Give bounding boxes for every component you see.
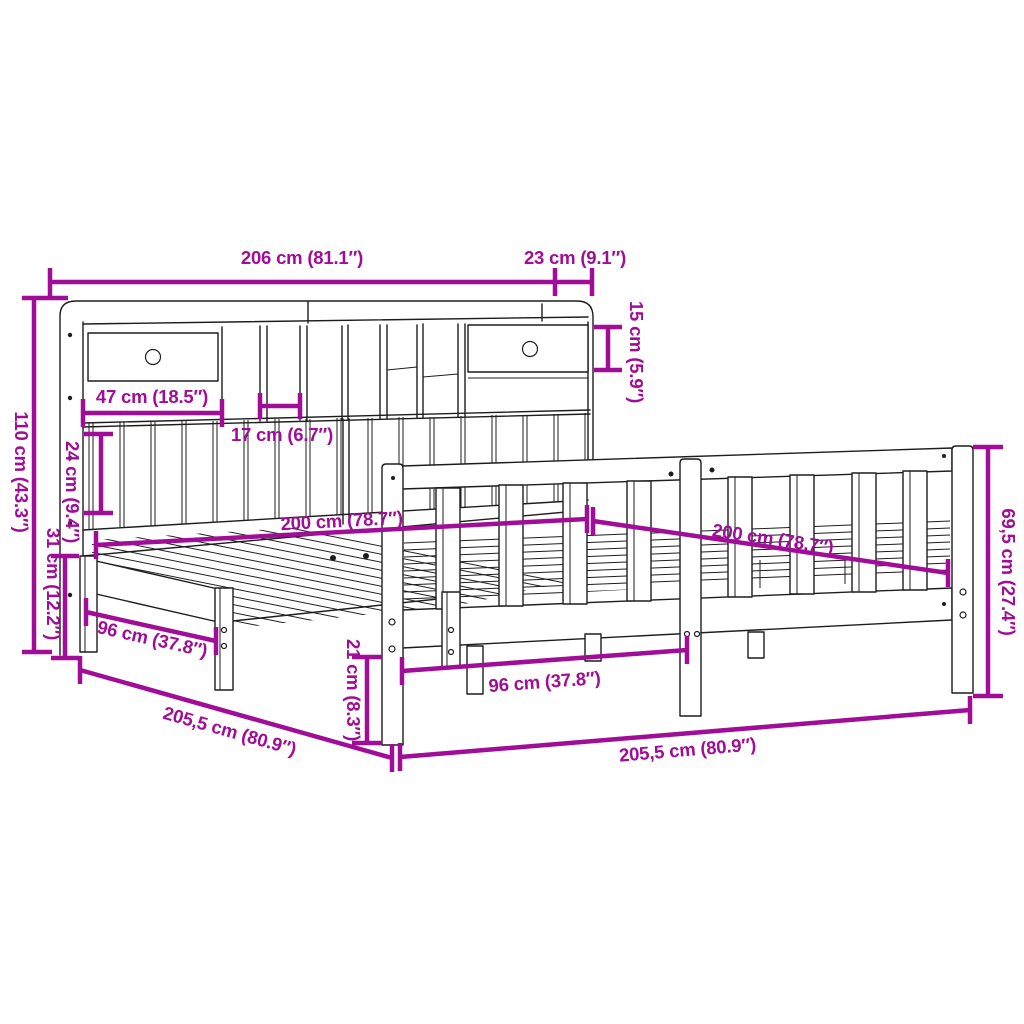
dim-frame-side-height: 31 cm (12.2″) — [43, 528, 79, 658]
left-bed-side-rail — [83, 558, 218, 622]
dim-bookcase-width: 206 cm (81.1″) — [50, 247, 592, 296]
dim-under-bed-clearance: 21 cm (8.3″) — [343, 639, 382, 743]
dim-label: 206 cm (81.1″) — [241, 247, 363, 268]
right-bed-frame — [382, 446, 973, 745]
right-drawer-knob — [523, 342, 538, 357]
diagram-svg: 206 cm (81.1″) 23 cm (9.1″) 15 cm (5.9″)… — [0, 0, 1024, 1024]
dim-label: 110 cm (43.3″) — [11, 411, 32, 532]
dim-label: 47 cm (18.5″) — [96, 386, 208, 407]
dim-label: 17 cm (6.7″) — [231, 424, 333, 445]
left-drawer-knob — [146, 350, 161, 365]
dim-label: 31 cm (12.2″) — [43, 528, 64, 640]
dim-label: 96 cm (37.8″) — [488, 667, 601, 696]
dim-footboard-height: 69,5 cm (27.4″) — [973, 447, 1019, 696]
dim-bookcase-depth: 23 cm (9.1″) — [524, 247, 626, 268]
bed-post-right — [952, 446, 973, 693]
dim-label: 23 cm (9.1″) — [524, 247, 626, 268]
dim-label: 69,5 cm (27.4″) — [998, 508, 1019, 635]
dim-label: 21 cm (8.3″) — [343, 639, 364, 741]
dim-label: 24 cm (9.4″) — [62, 441, 83, 543]
bed-post-middle — [680, 459, 701, 716]
product-dimension-image: 206 cm (81.1″) 23 cm (9.1″) 15 cm (5.9″)… — [0, 0, 1024, 1024]
dim-label: 15 cm (5.9″) — [626, 301, 647, 403]
dim-top-shelf-height: 15 cm (5.9″) — [594, 301, 647, 403]
dim-lower-panel-height: 24 cm (9.4″) — [62, 434, 113, 543]
right-bed-lower-rail — [402, 588, 952, 648]
dim-label: 96 cm (37.8″) — [95, 616, 209, 661]
